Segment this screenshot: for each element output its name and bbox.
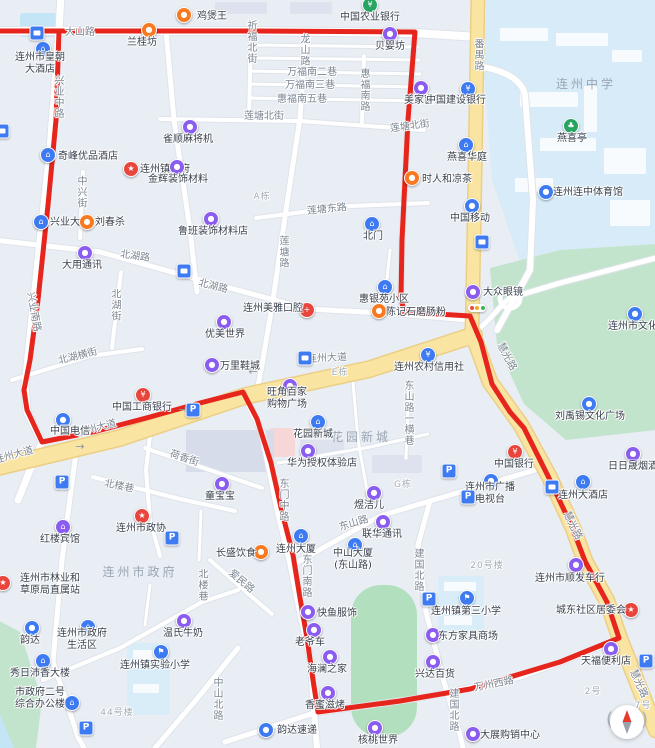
poi-marker-icon[interactable]: ● [464, 198, 480, 214]
poi-label[interactable]: 华为授权体验店 [287, 458, 357, 470]
poi-label[interactable]: 连州市林业和草原局直属站 [20, 573, 80, 597]
building-footprint [133, 684, 159, 693]
road-label: 兴业中路 [51, 75, 63, 119]
poi-label-line2: 草原局直属站 [20, 585, 80, 597]
poi-marker-icon[interactable]: ⌂ [458, 137, 474, 153]
poi-marker-icon[interactable]: ⌂ [64, 695, 80, 711]
poi-marker-icon[interactable]: ● [300, 443, 316, 459]
poi-label[interactable]: 中国农业银行 [340, 12, 400, 24]
road-label: 万福南三巷 [285, 80, 335, 92]
poi-label[interactable]: 连州市顺发车行 [535, 573, 605, 585]
poi-label[interactable]: 兴达百货 [415, 669, 455, 681]
poi-label[interactable]: 海澜之家 [307, 664, 347, 676]
building-number-label: A栋 [253, 191, 270, 203]
building-footprint [612, 50, 642, 62]
road-label: 祈福北街 [244, 20, 256, 64]
road-beilou-lane-s [199, 511, 201, 560]
parking-icon[interactable]: P [422, 592, 437, 607]
compass[interactable]: ( ) [606, 701, 648, 743]
poi-label-line2: 综合办公楼 [15, 699, 65, 711]
poi-label[interactable]: 连州市政协 [116, 523, 166, 535]
building-footprint [610, 200, 650, 226]
poi-marker-icon[interactable]: ⌂ [364, 216, 380, 232]
poi-marker-icon[interactable]: ● [366, 485, 382, 501]
bus-stop-icon[interactable] [298, 351, 313, 366]
building-number-label: 2号 [585, 686, 602, 698]
compass-arc-right: ) [641, 709, 648, 730]
building-footprint [500, 28, 548, 41]
poi-marker-icon[interactable]: ● [141, 22, 157, 38]
road-label: 东门南路 [299, 554, 311, 598]
poi-marker-icon[interactable]: ● [77, 245, 93, 261]
building-footprint [372, 455, 422, 473]
poi-marker-icon[interactable]: ⌂ [40, 147, 56, 163]
poi-marker-icon[interactable]: ★ [134, 508, 150, 524]
poi-label-line2: (东山路) [333, 560, 373, 572]
poi-marker-icon[interactable]: ● [581, 396, 597, 412]
building-footprint [444, 582, 476, 591]
road-label: 建国北路 [446, 688, 458, 732]
sports-field-area [351, 585, 417, 737]
bus-stop-icon[interactable] [545, 480, 560, 495]
road-label: 连州大道 [307, 352, 348, 366]
bus-stop-icon[interactable] [475, 235, 490, 250]
bus-stop-icon[interactable] [177, 264, 192, 279]
poi-label[interactable]: 贝婴坊 [375, 41, 405, 53]
poi-marker-icon[interactable]: ★ [123, 161, 139, 177]
poi-label[interactable]: 中国银行 [494, 459, 534, 471]
poi-marker-icon[interactable]: ¥ [507, 444, 523, 460]
road-label: 建国北路 [411, 548, 423, 592]
building-footprint [556, 33, 608, 46]
poi-label[interactable]: 花园新城 [293, 429, 333, 441]
area-label: 连州市政府 [102, 566, 177, 578]
poi-label-line2: 大酒店 [15, 64, 65, 76]
poi-label[interactable]: 大用通讯 [62, 260, 102, 272]
poi-marker-icon[interactable]: ● [216, 314, 232, 330]
poi-marker-icon[interactable]: ● [371, 303, 387, 319]
road-zhengxie-road [146, 418, 160, 556]
poi-label[interactable]: 奇峰优品酒店 [58, 151, 118, 163]
road-label: 惠福南路 [357, 68, 369, 112]
poi-label[interactable]: 时人和凉茶 [422, 174, 472, 186]
bus-stop-icon[interactable] [30, 26, 45, 41]
poi-label[interactable]: 大众眼镜 [483, 287, 523, 299]
poi-marker-icon[interactable]: ⌂ [310, 414, 326, 430]
poi-label[interactable]: 童宝宝 [205, 491, 235, 503]
road-lane-2 [250, 58, 419, 60]
poi-marker-icon[interactable]: ● [568, 557, 584, 573]
map-canvas[interactable]: 大山路兴业中路祈福北街龙山路万福南二巷万福南三巷惠福南五巷惠福南路莲塘北街莲塘北… [0, 0, 655, 748]
parking-icon[interactable]: P [79, 721, 94, 736]
poi-marker-icon[interactable]: ● [425, 654, 441, 670]
poi-label[interactable]: 核桃世界 [358, 735, 398, 747]
poi-label[interactable]: 连州镇实验小学 [120, 660, 190, 672]
poi-marker-icon[interactable]: ● [322, 649, 338, 665]
road-label: 北湖街 [108, 289, 120, 322]
poi-label[interactable]: 连州农村信用社 [394, 362, 464, 374]
poi-label[interactable]: 北门 [363, 231, 383, 243]
poi-label[interactable]: 老爷车 [295, 637, 325, 649]
lane-direction-arrow-icon: → [75, 441, 84, 453]
poi-label[interactable]: 快鱼服饰 [317, 608, 357, 620]
poi-marker-icon[interactable]: ● [182, 119, 198, 135]
poi-label[interactable]: 大展购销中心 [480, 730, 540, 742]
poi-marker-icon[interactable]: ¥ [420, 347, 436, 363]
poi-label[interactable]: 旺角百家购物广场 [267, 387, 307, 411]
poi-marker-icon[interactable]: ● [176, 613, 192, 629]
traffic-light-icon [468, 304, 486, 312]
road-label: 莲塘路 [276, 236, 288, 269]
poi-label[interactable]: 连州美雅口腔 [243, 303, 303, 315]
road-label: 番禺路 [471, 39, 483, 72]
building-footprint [584, 86, 597, 132]
poi-marker-icon[interactable]: ● [538, 184, 554, 200]
poi-marker-icon[interactable]: ● [203, 211, 219, 227]
compass-needle-icon [610, 705, 644, 739]
parking-icon[interactable]: P [639, 654, 654, 669]
road-label: 东门中路 [276, 478, 288, 522]
poi-label-line2: 购物广场 [267, 399, 307, 411]
poi-marker-icon[interactable]: ● [79, 214, 95, 230]
building-footprint [604, 148, 646, 174]
poi-label[interactable]: 金辉装饰材料 [148, 174, 208, 186]
building-number-label: 20号楼 [470, 560, 503, 572]
parking-icon[interactable]: P [186, 403, 201, 418]
building-number-label: G栋 [394, 479, 412, 491]
poi-marker-icon[interactable]: ● [214, 476, 230, 492]
poi-marker-icon[interactable]: ⚑ [459, 590, 475, 606]
poi-label[interactable]: 中山大厦(东山路) [333, 548, 373, 572]
poi-marker-icon[interactable]: ♣ [563, 118, 579, 134]
building-number-label: 44号楼 [100, 707, 133, 719]
poi-marker-icon[interactable]: ● [169, 159, 185, 175]
poi-label-line2: 生活区 [57, 640, 107, 652]
bus-stop-icon[interactable] [0, 124, 10, 139]
poi-label[interactable]: 韵达速递 [277, 725, 317, 737]
poi-label[interactable]: 陈记石磨肠粉 [386, 307, 446, 319]
poi-label[interactable]: 连州镇第三小学 [431, 606, 501, 618]
road-label: 大山路 [65, 27, 95, 39]
poi-label[interactable]: 秀日沛香大楼 [10, 668, 70, 680]
poi-label[interactable]: 雀顺麻将机 [163, 134, 213, 146]
poi-label[interactable]: 连州大酒店 [558, 490, 608, 502]
poi-label[interactable]: 城东社区居委会 [556, 605, 626, 617]
road-beihu-road-west [0, 240, 308, 309]
poi-marker-icon[interactable]: ● [625, 446, 641, 462]
poi-label[interactable]: 万里鞋城 [220, 361, 260, 373]
poi-marker-icon[interactable]: ⌂ [293, 528, 309, 544]
poi-marker-icon[interactable]: ● [603, 641, 619, 657]
poi-label[interactable]: 东方家具商场 [438, 631, 498, 643]
building-number-label: E栋 [332, 367, 349, 379]
poi-label[interactable]: 日日晟烟酒 [608, 461, 655, 473]
road-label: 龙山路 [297, 34, 309, 67]
poi-label[interactable]: 连州连中体育馆 [553, 187, 623, 199]
poi-label[interactable]: 燕喜亭 [557, 133, 587, 145]
poi-marker-icon[interactable]: ● [367, 720, 383, 736]
poi-label[interactable]: 兰桂坊 [127, 37, 157, 49]
poi-label[interactable]: 长盛饮食 [216, 548, 256, 560]
poi-marker-icon[interactable]: ● [176, 7, 192, 23]
poi-label[interactable]: 温氏牛奶 [163, 628, 203, 640]
poi-label[interactable]: 鸡煲王 [197, 11, 227, 23]
road-label: 莲塘北街 [244, 111, 284, 123]
poi-label[interactable]: 刘禹锡文化广场 [555, 411, 625, 423]
poi-label[interactable]: 红楼宾馆 [40, 534, 80, 546]
poi-marker-icon[interactable]: ⌂ [35, 653, 51, 669]
poi-label[interactable]: 韵达 [20, 635, 40, 647]
road-label: 中兴街 [74, 176, 86, 209]
poi-marker-icon[interactable]: ⌂ [55, 519, 71, 535]
poi-label[interactable]: 天福便利店 [581, 656, 631, 668]
poi-label[interactable]: 中国移动 [450, 213, 490, 225]
poi-marker-icon[interactable]: ● [24, 620, 40, 636]
poi-marker-icon[interactable]: ● [465, 284, 481, 300]
road-label: 东山路一横巷 [401, 380, 413, 446]
building-footprint [290, 2, 332, 14]
poi-marker-icon[interactable]: ● [404, 170, 420, 186]
poi-label[interactable]: 连州市皇朝大酒店 [15, 52, 65, 76]
parking-icon[interactable]: P [55, 475, 70, 490]
poi-label[interactable]: 香蜜滋烤 [305, 700, 345, 712]
road-label: 惠福南五巷 [277, 94, 327, 106]
road-label: 万福南二巷 [287, 67, 337, 79]
parking-icon[interactable]: P [165, 531, 180, 546]
poi-marker-icon[interactable]: ⌂ [377, 279, 393, 295]
poi-label[interactable]: 市政府二号综合办公楼 [15, 687, 65, 711]
poi-marker-icon[interactable]: ● [375, 514, 391, 530]
poi-label[interactable]: 优美世界 [205, 329, 245, 341]
poi-marker-icon[interactable]: ● [306, 622, 322, 638]
road-label: 中山北路 [210, 677, 222, 721]
area-label: 花园新城 [331, 431, 391, 443]
road-label: 北楼巷 [195, 569, 207, 602]
poi-label[interactable]: 中国建设银行 [426, 95, 486, 107]
poi-marker-icon[interactable]: ● [258, 722, 274, 738]
poi-marker-icon[interactable]: ● [204, 357, 220, 373]
poi-label[interactable]: 连州市政府生活区 [57, 628, 107, 652]
poi-marker-icon[interactable]: ⌂ [575, 474, 591, 490]
poi-marker-icon[interactable]: ● [300, 604, 316, 620]
poi-label[interactable]: 燕喜华庭 [447, 152, 487, 164]
parking-icon[interactable]: P [442, 464, 457, 479]
poi-label[interactable]: 鲁班装饰材料店 [178, 226, 248, 238]
poi-label[interactable]: 连州市文化馆 [608, 321, 655, 333]
poi-label[interactable]: 刘春杀 [95, 217, 125, 229]
poi-marker-icon[interactable]: ● [627, 306, 643, 322]
poi-marker-icon[interactable]: ● [413, 80, 429, 96]
poi-marker-icon[interactable]: ● [320, 685, 336, 701]
poi-label[interactable]: 煜洁儿 [354, 500, 384, 512]
poi-label[interactable]: 联华通讯 [362, 529, 402, 541]
area-label: 连州中学 [556, 78, 616, 90]
poi-label[interactable]: 连州大厦 [276, 544, 316, 556]
poi-marker-icon[interactable]: ⚑ [153, 644, 169, 660]
poi-label[interactable]: 中国电信 [50, 426, 90, 438]
parking-icon[interactable]: P [461, 490, 476, 505]
poi-marker-icon[interactable]: ● [382, 26, 398, 42]
poi-label[interactable]: 中国工商银行 [112, 402, 172, 414]
poi-marker-icon[interactable]: ● [465, 726, 481, 742]
poi-marker-icon[interactable]: ¥ [135, 387, 151, 403]
poi-marker-icon[interactable]: ⌂ [33, 214, 49, 230]
